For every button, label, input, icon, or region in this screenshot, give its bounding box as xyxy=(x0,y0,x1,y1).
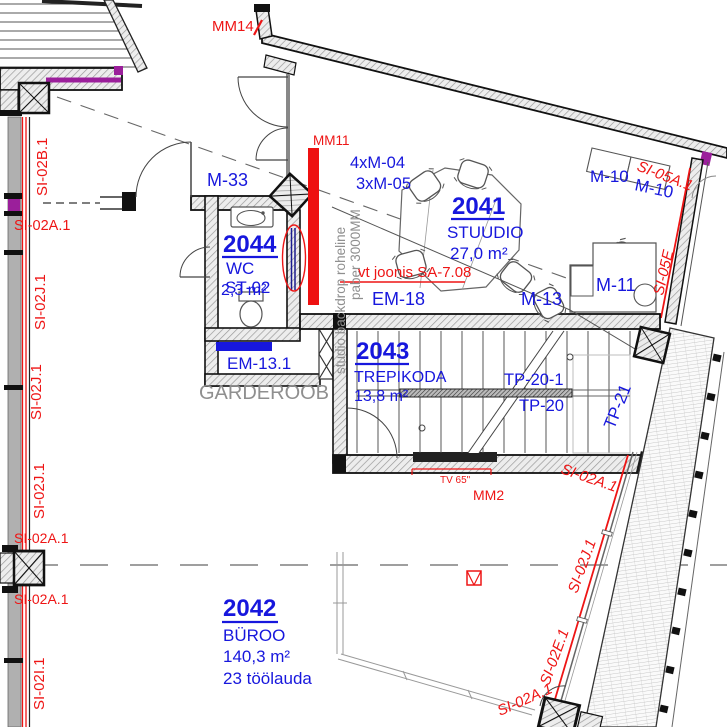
floor-plan-svg: 2041 STUUDIO 27,0 m² 2043 TREPIKODA 13,8… xyxy=(0,0,727,727)
corridor-top-wall xyxy=(100,142,291,211)
room-name-2041: STUUDIO xyxy=(447,223,524,242)
floor-plan: 2041 STUUDIO 27,0 m² 2043 TREPIKODA 13,8… xyxy=(0,0,727,727)
door-arc xyxy=(238,77,288,127)
code-3xm05: 3xM-05 xyxy=(356,175,411,193)
magenta-accent xyxy=(8,199,20,211)
door-arc-m33 xyxy=(136,142,191,197)
room-name-2043: TREPIKODA xyxy=(354,369,447,386)
window-wall-left xyxy=(0,117,30,727)
annotation-mm14: MM14 xyxy=(212,18,254,35)
column xyxy=(14,551,44,585)
room-area-2041: 27,0 m² xyxy=(450,244,508,263)
code-em131: EM-13.1 xyxy=(227,354,291,373)
annotation-si02j1: SI-02J.1 xyxy=(32,274,49,330)
annotation-si02j1: SI-02J.1 xyxy=(28,364,45,420)
door-arc xyxy=(256,128,288,160)
column xyxy=(19,83,49,113)
code-4xm04: 4xM-04 xyxy=(350,154,405,172)
annotation-tv: TV 65" xyxy=(440,475,471,486)
column xyxy=(634,327,670,363)
backdrop-red-bar xyxy=(308,148,319,305)
annotation-mm11: MM11 xyxy=(313,133,350,148)
annotation-si02a1: SI-02A.1 xyxy=(14,591,69,607)
code-m10: M-10 xyxy=(590,167,629,186)
column xyxy=(538,697,579,727)
em-13-bar xyxy=(216,342,272,351)
code-m13: M-13 xyxy=(521,289,562,309)
door-arc-staircase xyxy=(347,408,397,458)
room-area-2042: 140,3 m² xyxy=(223,647,290,666)
code-tp20: TP-20 xyxy=(519,397,564,415)
backdrop-note-1: studio backdrop roheline xyxy=(333,227,348,374)
code-em18: EM-18 xyxy=(372,289,425,309)
annotation-mm2: MM2 xyxy=(473,487,504,503)
room-number-2044: 2044 xyxy=(223,231,277,258)
code-tp201: TP-20-1 xyxy=(504,371,564,389)
room-name-2042: BÜROO xyxy=(223,626,285,645)
shaft-x-brace xyxy=(319,329,334,379)
room-number-2043: 2043 xyxy=(356,338,409,365)
backdrop-note-2: paber 3000MM xyxy=(348,209,363,300)
annotation-si02a1: SI-02A.1 xyxy=(14,530,69,546)
room-number-2041: 2041 xyxy=(452,193,505,220)
room-area-2043: 13,8 m² xyxy=(354,388,409,405)
tv-wall-mark xyxy=(413,452,497,462)
room-number-2042: 2042 xyxy=(223,595,276,622)
annotation-si02b1: SI-02B.1 xyxy=(34,138,51,196)
annotation-si02i1: SI-02I.1 xyxy=(31,657,48,710)
sink xyxy=(231,207,273,227)
see-drawing-note: vt joonis SA-7.08 xyxy=(358,264,471,281)
code-m11: M-11 xyxy=(596,275,636,295)
terrace-deck xyxy=(0,0,147,72)
annotation-si02a1: SI-02A.1 xyxy=(14,218,70,234)
code-st02: ST-02 xyxy=(225,278,270,297)
red-marker-box xyxy=(467,571,481,585)
room-name-2044: WC xyxy=(226,259,254,278)
room-desks-2042: 23 töölauda xyxy=(223,669,312,688)
byroo-partitions xyxy=(333,552,535,715)
garderoob-label: GARDEROOB xyxy=(199,382,329,404)
entry-doors xyxy=(238,74,288,178)
annotation-si02j1: SI-02J.1 xyxy=(31,463,48,519)
code-m33: M-33 xyxy=(207,170,248,190)
